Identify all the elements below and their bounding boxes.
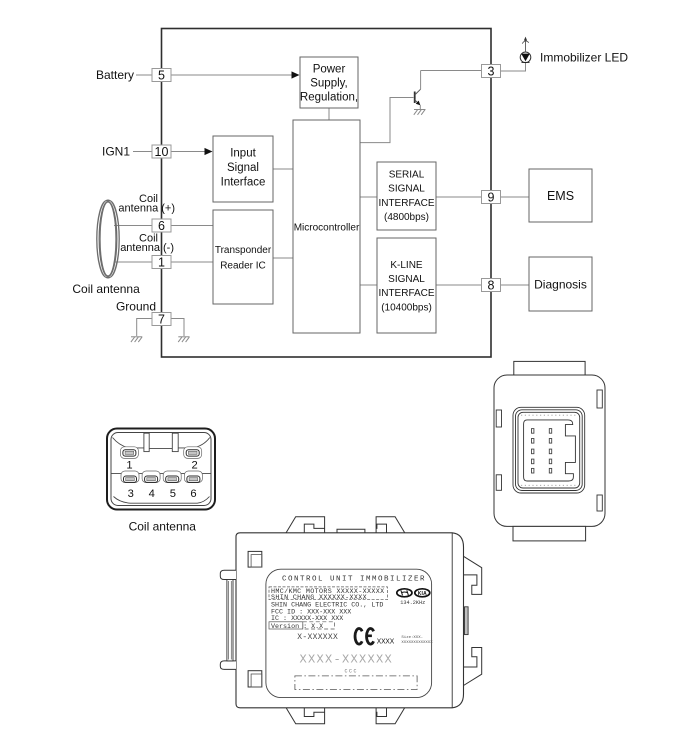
svg-text:Supply,: Supply, bbox=[310, 78, 348, 90]
svg-text:antenna (+): antenna (+) bbox=[118, 203, 175, 215]
svg-text:134.2KHz: 134.2KHz bbox=[400, 600, 425, 606]
svg-text:Immobilizer LED: Immobilizer LED bbox=[540, 51, 628, 65]
svg-text:(10400bps): (10400bps) bbox=[381, 303, 432, 314]
svg-text:SIGNAL: SIGNAL bbox=[388, 184, 425, 195]
svg-text:Signal: Signal bbox=[227, 162, 259, 174]
svg-text:EMS: EMS bbox=[547, 189, 574, 203]
svg-text:5: 5 bbox=[170, 488, 176, 500]
svg-text:Input: Input bbox=[230, 148, 256, 160]
svg-text:1: 1 bbox=[126, 459, 132, 471]
svg-text:Coil antenna: Coil antenna bbox=[129, 520, 197, 534]
svg-text:CCC: CCC bbox=[345, 669, 359, 675]
svg-text:XXXX-XXXXXX: XXXX-XXXXXX bbox=[300, 653, 394, 667]
svg-text:XXXXXXXXXXXXX: XXXXXXXXXXXXX bbox=[401, 641, 433, 645]
svg-text:Version : X.X: Version : X.X bbox=[271, 623, 323, 631]
svg-text:XXXX: XXXX bbox=[377, 638, 395, 646]
svg-text:Microcontroller: Microcontroller bbox=[294, 223, 360, 234]
svg-text:Ground: Ground bbox=[116, 300, 156, 314]
svg-text:INTERFACE: INTERFACE bbox=[378, 288, 434, 299]
svg-text:INTERFACE: INTERFACE bbox=[378, 198, 434, 209]
svg-text:antenna (-): antenna (-) bbox=[120, 242, 174, 254]
svg-text:Regulation,: Regulation, bbox=[300, 92, 358, 104]
svg-text:CONTROL UNIT IMMOBILIZER: CONTROL UNIT IMMOBILIZER bbox=[282, 576, 426, 584]
svg-text:Power: Power bbox=[313, 64, 346, 76]
svg-text:X-XXXXXX: X-XXXXXX bbox=[297, 633, 338, 642]
svg-text:7: 7 bbox=[158, 313, 165, 327]
svg-text:Battery: Battery bbox=[96, 68, 134, 82]
svg-text:Coil antenna: Coil antenna bbox=[72, 282, 140, 296]
svg-text:Transponder: Transponder bbox=[215, 245, 272, 256]
svg-text:4: 4 bbox=[149, 488, 155, 500]
svg-text:5: 5 bbox=[158, 69, 165, 83]
svg-text:6: 6 bbox=[158, 219, 165, 233]
svg-text:1: 1 bbox=[158, 256, 165, 270]
svg-text:Size:XXX-: Size:XXX- bbox=[401, 635, 423, 640]
svg-text:6: 6 bbox=[190, 488, 196, 500]
svg-text:3: 3 bbox=[488, 65, 495, 79]
svg-text:KIA: KIA bbox=[418, 591, 427, 597]
svg-text:Reader IC: Reader IC bbox=[220, 261, 266, 272]
svg-text:8: 8 bbox=[488, 279, 495, 293]
svg-text:Diagnosis: Diagnosis bbox=[534, 277, 587, 291]
svg-text:9: 9 bbox=[488, 191, 495, 205]
svg-text:10: 10 bbox=[155, 145, 169, 159]
svg-text:Interface: Interface bbox=[221, 177, 266, 189]
svg-text:3: 3 bbox=[128, 488, 134, 500]
svg-text:IGN1: IGN1 bbox=[102, 145, 130, 159]
svg-text:K-LINE: K-LINE bbox=[390, 260, 423, 271]
svg-text:2: 2 bbox=[191, 459, 197, 471]
svg-text:SERIAL: SERIAL bbox=[389, 170, 425, 181]
svg-text:(4800bps): (4800bps) bbox=[384, 212, 429, 223]
svg-text:SIGNAL: SIGNAL bbox=[388, 274, 425, 285]
